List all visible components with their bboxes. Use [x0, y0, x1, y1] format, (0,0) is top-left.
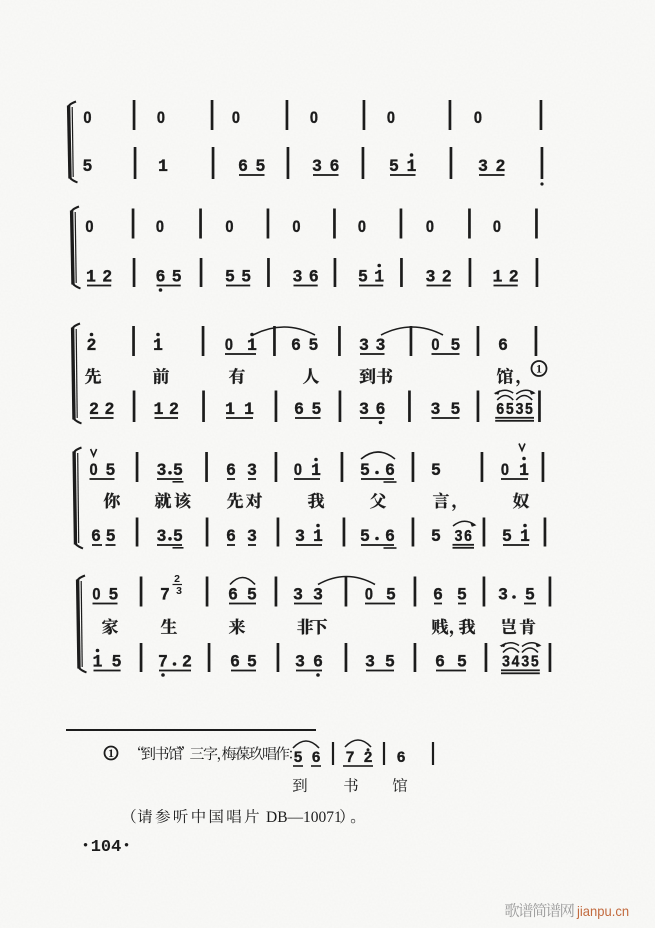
svg-text:0: 0	[387, 109, 395, 127]
svg-text:3: 3	[515, 400, 523, 419]
svg-text:3: 3	[498, 586, 508, 606]
svg-text:5: 5	[431, 461, 441, 481]
svg-text:104: 104	[91, 838, 122, 857]
svg-text:5: 5	[531, 652, 539, 671]
svg-text:2: 2	[363, 749, 372, 767]
svg-text:3: 3	[454, 527, 462, 546]
svg-text:5: 5	[309, 336, 319, 356]
svg-text:1: 1	[108, 746, 114, 760]
svg-text:0: 0	[493, 218, 501, 236]
svg-text:5: 5	[83, 157, 93, 177]
svg-text:0: 0	[358, 218, 366, 236]
svg-text:2: 2	[174, 573, 180, 585]
svg-text:0: 0	[157, 109, 165, 127]
svg-text:0: 0	[294, 461, 302, 479]
svg-text:5: 5	[431, 527, 441, 547]
svg-text:5: 5	[525, 400, 533, 419]
svg-text:1: 1	[158, 157, 168, 177]
svg-text:DB—10071: DB—10071	[266, 809, 342, 826]
svg-text:3: 3	[502, 652, 510, 671]
svg-text:0: 0	[92, 586, 100, 604]
svg-text:0: 0	[431, 336, 439, 354]
svg-text:2: 2	[87, 336, 97, 356]
svg-text:1: 1	[153, 336, 163, 356]
svg-text:6: 6	[291, 336, 301, 356]
svg-text:0: 0	[365, 586, 373, 604]
svg-text:0: 0	[292, 218, 300, 236]
svg-text:7: 7	[160, 586, 170, 606]
svg-text:6: 6	[496, 400, 504, 419]
svg-text:0: 0	[225, 336, 233, 354]
svg-text:1: 1	[536, 362, 542, 376]
svg-text:•: •	[83, 837, 88, 852]
svg-text:0: 0	[310, 109, 318, 127]
svg-text:0: 0	[225, 218, 233, 236]
svg-text:5: 5	[506, 400, 514, 419]
svg-text:6: 6	[498, 336, 508, 356]
svg-text:6: 6	[464, 527, 472, 546]
svg-text:jianpu.cn: jianpu.cn	[576, 904, 629, 920]
svg-text:0: 0	[83, 109, 91, 127]
svg-text:6: 6	[396, 749, 405, 767]
svg-text:0: 0	[90, 461, 98, 479]
svg-text:7: 7	[345, 749, 354, 767]
svg-text:0: 0	[85, 218, 93, 236]
svg-text:5: 5	[293, 749, 302, 767]
svg-text:•: •	[124, 837, 129, 852]
svg-text:0: 0	[232, 109, 240, 127]
svg-text:0: 0	[156, 218, 164, 236]
svg-text:4: 4	[511, 652, 519, 671]
svg-text:3: 3	[176, 585, 182, 597]
svg-text:0: 0	[501, 461, 509, 479]
svg-text:0: 0	[474, 109, 482, 127]
svg-text:6: 6	[311, 749, 320, 767]
svg-text:3: 3	[521, 652, 529, 671]
svg-text:0: 0	[426, 218, 434, 236]
